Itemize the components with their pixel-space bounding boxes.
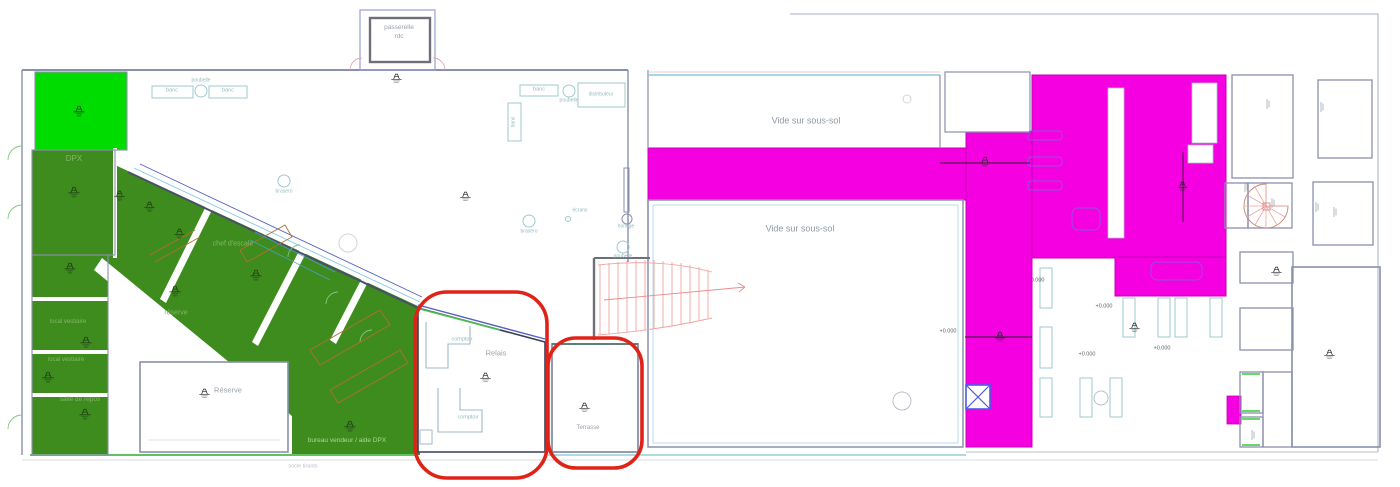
elevation-label: +0.000 bbox=[1079, 352, 1096, 358]
passerelle-label-line2: rdc bbox=[394, 34, 403, 41]
passerelle-label-line1: passerelle bbox=[384, 25, 414, 32]
dpx-room bbox=[32, 150, 115, 255]
screens-post bbox=[566, 217, 571, 222]
left-rooms-column bbox=[32, 255, 108, 455]
trash-bin-label: poubelle bbox=[614, 255, 633, 260]
dpx-room-label: DPX bbox=[66, 155, 82, 163]
annotation-terrasse-highlight bbox=[548, 338, 642, 468]
reserve-room bbox=[140, 362, 288, 452]
elevation-label: +0.000 bbox=[1028, 278, 1045, 284]
bench-label: banc bbox=[512, 117, 517, 128]
trash-bin-label: poubelle bbox=[560, 99, 579, 104]
clock-label: horloge bbox=[618, 225, 635, 230]
screens-label: écrans bbox=[572, 209, 587, 214]
floor-plan-drawing bbox=[0, 0, 1400, 487]
x-box-symbol bbox=[966, 385, 990, 409]
brasero bbox=[278, 175, 290, 187]
vending-machine-label: distributeur bbox=[589, 93, 614, 98]
brasero bbox=[523, 215, 535, 227]
micro-labels bbox=[1245, 99, 1336, 440]
spiral-staircase bbox=[1244, 184, 1288, 228]
right-rooms bbox=[1225, 75, 1380, 447]
vestiaire-room-label: local vestiaire bbox=[48, 357, 84, 363]
relais-shop-label: Relais bbox=[486, 349, 507, 357]
brasero-label: brasero bbox=[276, 190, 293, 195]
bench-label: banc bbox=[166, 88, 178, 94]
bench-label: banc bbox=[533, 87, 545, 93]
break-room-label: salle de repos bbox=[60, 397, 100, 404]
void-label: Vide sur sous-sol bbox=[772, 117, 841, 126]
counter-label: comptoir bbox=[457, 415, 478, 421]
terrasse-area bbox=[552, 344, 638, 452]
elevation-label: +0.000 bbox=[940, 329, 957, 335]
brasero-label: brasero bbox=[521, 230, 538, 235]
clock bbox=[622, 214, 632, 224]
reserve-room-label: réserve bbox=[164, 310, 187, 317]
trash-bin-label: poubelle bbox=[192, 79, 211, 84]
void-label: Vide sur sous-sol bbox=[766, 225, 835, 234]
reserve-storeroom-label: Réserve bbox=[214, 386, 242, 394]
magenta-white-strip bbox=[1108, 88, 1124, 238]
chef-escale-room-label: chef d'escale bbox=[213, 241, 254, 248]
floor-plan: passerelle rdc banc banc poubelle banc p… bbox=[0, 0, 1400, 487]
trash-bin bbox=[617, 241, 629, 253]
counter-label: comptoir bbox=[451, 337, 472, 343]
bureau-vendeur-label: bureau vendeur / aide DPX bbox=[308, 438, 386, 445]
green-bright-room bbox=[35, 72, 127, 150]
trash-bin bbox=[195, 85, 207, 97]
bench-label: banc bbox=[222, 88, 234, 94]
socle-tirants-label: socle tirants bbox=[288, 464, 317, 470]
right-rooms-door-marks bbox=[1242, 374, 1260, 445]
main-staircase bbox=[594, 258, 745, 340]
terrasse-label: Terrasse bbox=[576, 425, 599, 431]
elevation-label: +0.000 bbox=[1096, 304, 1113, 310]
vestiaire-room-label: local vestiaire bbox=[50, 319, 86, 325]
elevation-label: +0.000 bbox=[1154, 346, 1171, 352]
trash-bin bbox=[563, 85, 575, 97]
